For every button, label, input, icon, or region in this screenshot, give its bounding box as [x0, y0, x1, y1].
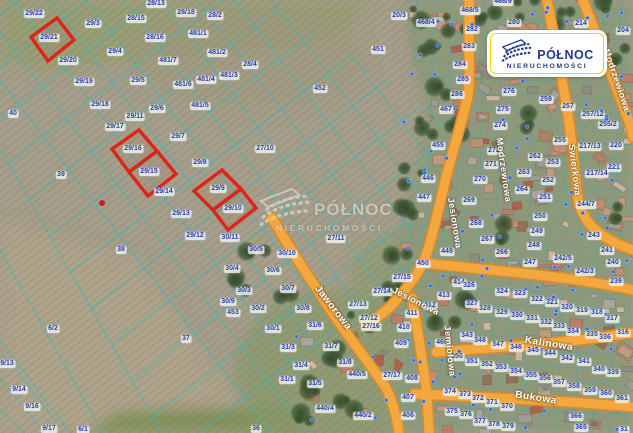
watermark-subtitle: NIERUCHOMOŚCI [276, 223, 383, 233]
map-canvas[interactable]: 29/2229/328/1528/1328/1828/16481/128/220… [0, 0, 633, 433]
marker-dot [99, 200, 105, 206]
logo-frame: PÓŁNOC NIERUCHOMOŚCI [490, 33, 604, 74]
watermark-logo: PÓŁNOC NIERUCHOMOŚCI [252, 186, 422, 246]
logo-title: PÓŁNOC [537, 48, 593, 62]
logo-subtitle: NIERUCHOMOŚCI [507, 63, 588, 70]
company-logo: PÓŁNOC NIERUCHOMOŚCI [487, 30, 607, 77]
logo-roof-icon [500, 38, 534, 63]
watermark-title: PÓŁNOC [314, 200, 393, 220]
